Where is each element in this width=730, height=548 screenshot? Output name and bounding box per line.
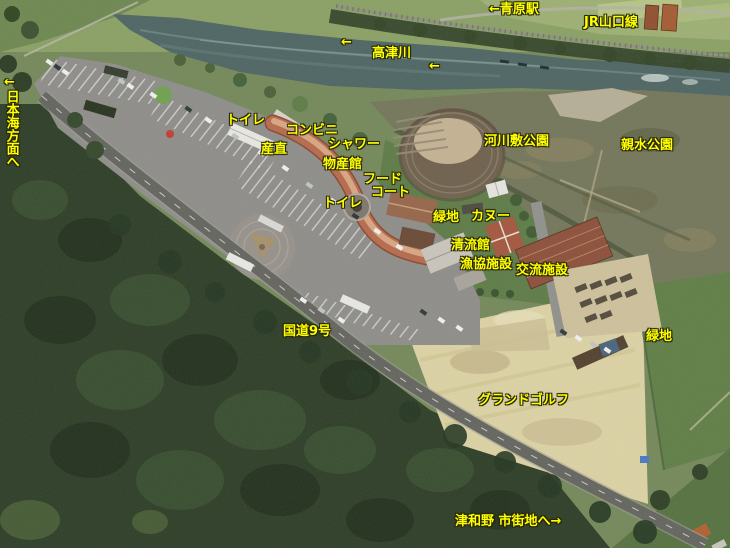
label-canoe: カヌー [471,210,510,224]
arrow-river-upstream-1: ← [341,36,352,50]
arrow-river-upstream-2: ← [429,60,440,74]
label-nihonkai-direction: 日本海方面へ [4,90,18,168]
label-route-9: 国道9号 [283,325,331,339]
label-food-court-line2: コート [371,186,410,200]
label-fishery-coop: 漁協施設 [460,258,512,272]
label-takatsu-river: 高津川 [372,47,411,61]
label-bussankan: 物産館 [323,158,362,172]
label-green-area-2: 緑地 [646,330,672,344]
label-seiryukan: 清流館 [451,239,490,253]
label-ground-golf: グランドゴルフ [478,394,569,408]
satellite-photo-rendering [0,0,730,548]
photo-grain-overlay [0,0,730,548]
aerial-map: ←青原駅 JR山口線 高津川 ← ← ← 日本海方面へ トイレ コンビニ 産直 … [0,0,730,548]
label-riverside-park: 河川敷公園 [484,135,549,149]
label-tsuwano-direction: 津和野 市街地へ→ [455,515,561,529]
label-toilet-2: トイレ [323,197,362,211]
arrow-sea-direction: ← [4,76,15,90]
label-exchange-facility: 交流施設 [516,264,568,278]
label-aohara-station: ←青原駅 [489,3,539,17]
label-green-area-1: 緑地 [433,211,459,225]
label-shower: シャワー [328,138,380,152]
label-shinsui-park: 親水公園 [621,139,673,153]
label-toilet-1: トイレ [226,114,265,128]
label-farm-stand: 産直 [261,143,287,157]
label-convenience-store: コンビニ [286,124,338,138]
label-jr-yamaguchi-line: JR山口線 [584,16,638,30]
